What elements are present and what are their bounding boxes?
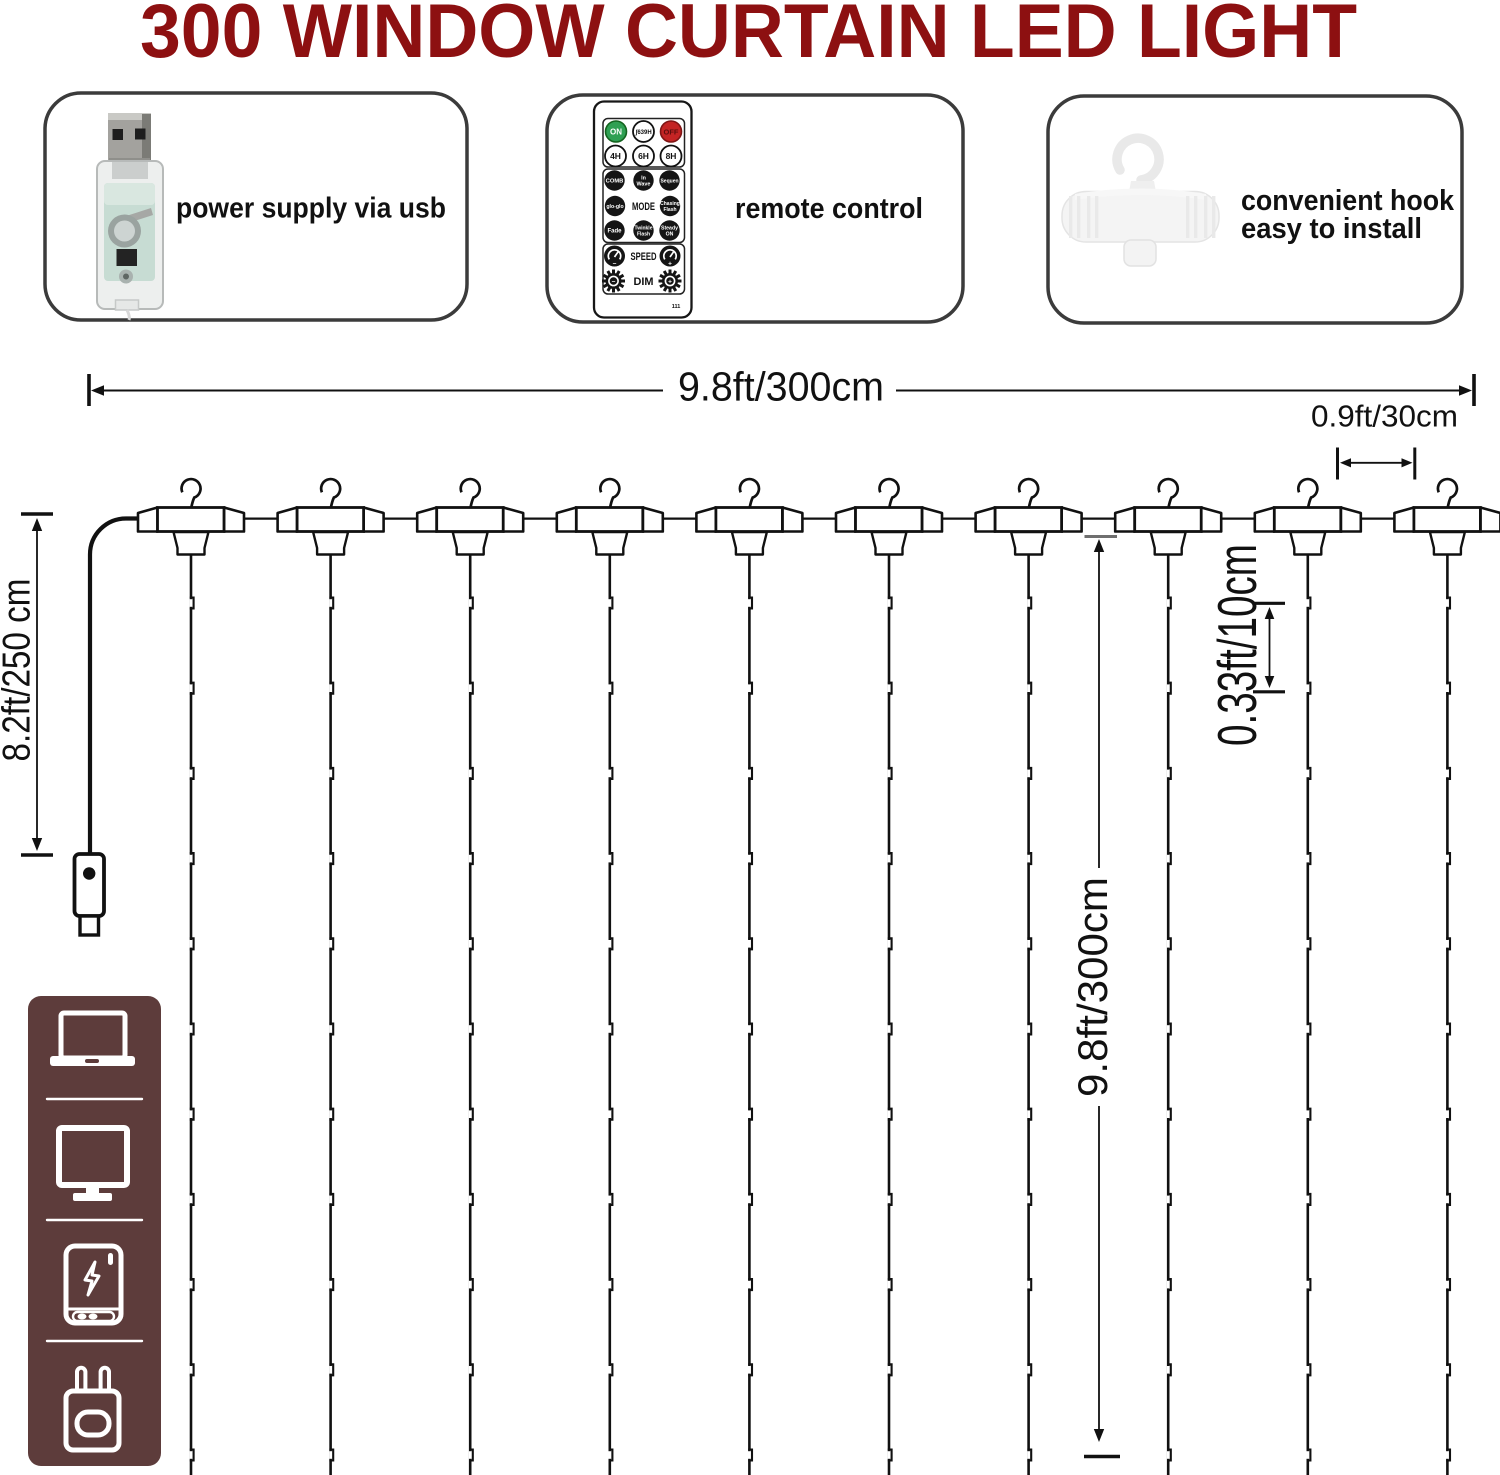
svg-text:−: − [613,260,617,267]
svg-text:0.33ft/10cm: 0.33ft/10cm [1206,544,1268,746]
svg-text:DIM: DIM [634,276,654,288]
svg-text:+: + [668,278,672,285]
svg-text:4H: 4H [610,151,621,161]
svg-text:9.8ft/300cm: 9.8ft/300cm [1069,877,1116,1097]
svg-text:ʃ639H: ʃ639H [634,130,651,136]
svg-text:111: 111 [672,304,681,310]
svg-text:SPEED: SPEED [631,251,657,263]
svg-text:remote control: remote control [735,193,923,225]
svg-text:Fade: Fade [607,229,622,235]
svg-text:ON: ON [610,128,622,137]
svg-text:COMB: COMB [606,179,624,185]
svg-text:+: + [668,260,672,267]
svg-text:ON: ON [666,231,674,237]
svg-text:9.8ft/300cm: 9.8ft/300cm [678,364,884,410]
svg-text:6H: 6H [638,151,649,161]
svg-text:Wave: Wave [637,181,651,187]
svg-text:MODE: MODE [632,201,655,213]
svg-text:0.9ft/30cm: 0.9ft/30cm [1311,399,1458,434]
svg-text:300 WINDOW CURTAIN LED LIGHT: 300 WINDOW CURTAIN LED LIGHT [140,0,1357,74]
svg-text:8H: 8H [666,151,677,161]
svg-text:Flash: Flash [663,207,676,213]
svg-text:easy to install: easy to install [1241,213,1422,245]
svg-text:Sequen: Sequen [660,179,678,185]
svg-text:OFF: OFF [664,128,679,137]
svg-text:power supply via usb: power supply via usb [176,193,446,225]
svg-text:−: − [612,278,616,285]
svg-text:glo-glo: glo-glo [606,204,623,210]
svg-text:Flash: Flash [637,231,650,237]
svg-text:8.2ft/250 cm: 8.2ft/250 cm [0,579,39,762]
